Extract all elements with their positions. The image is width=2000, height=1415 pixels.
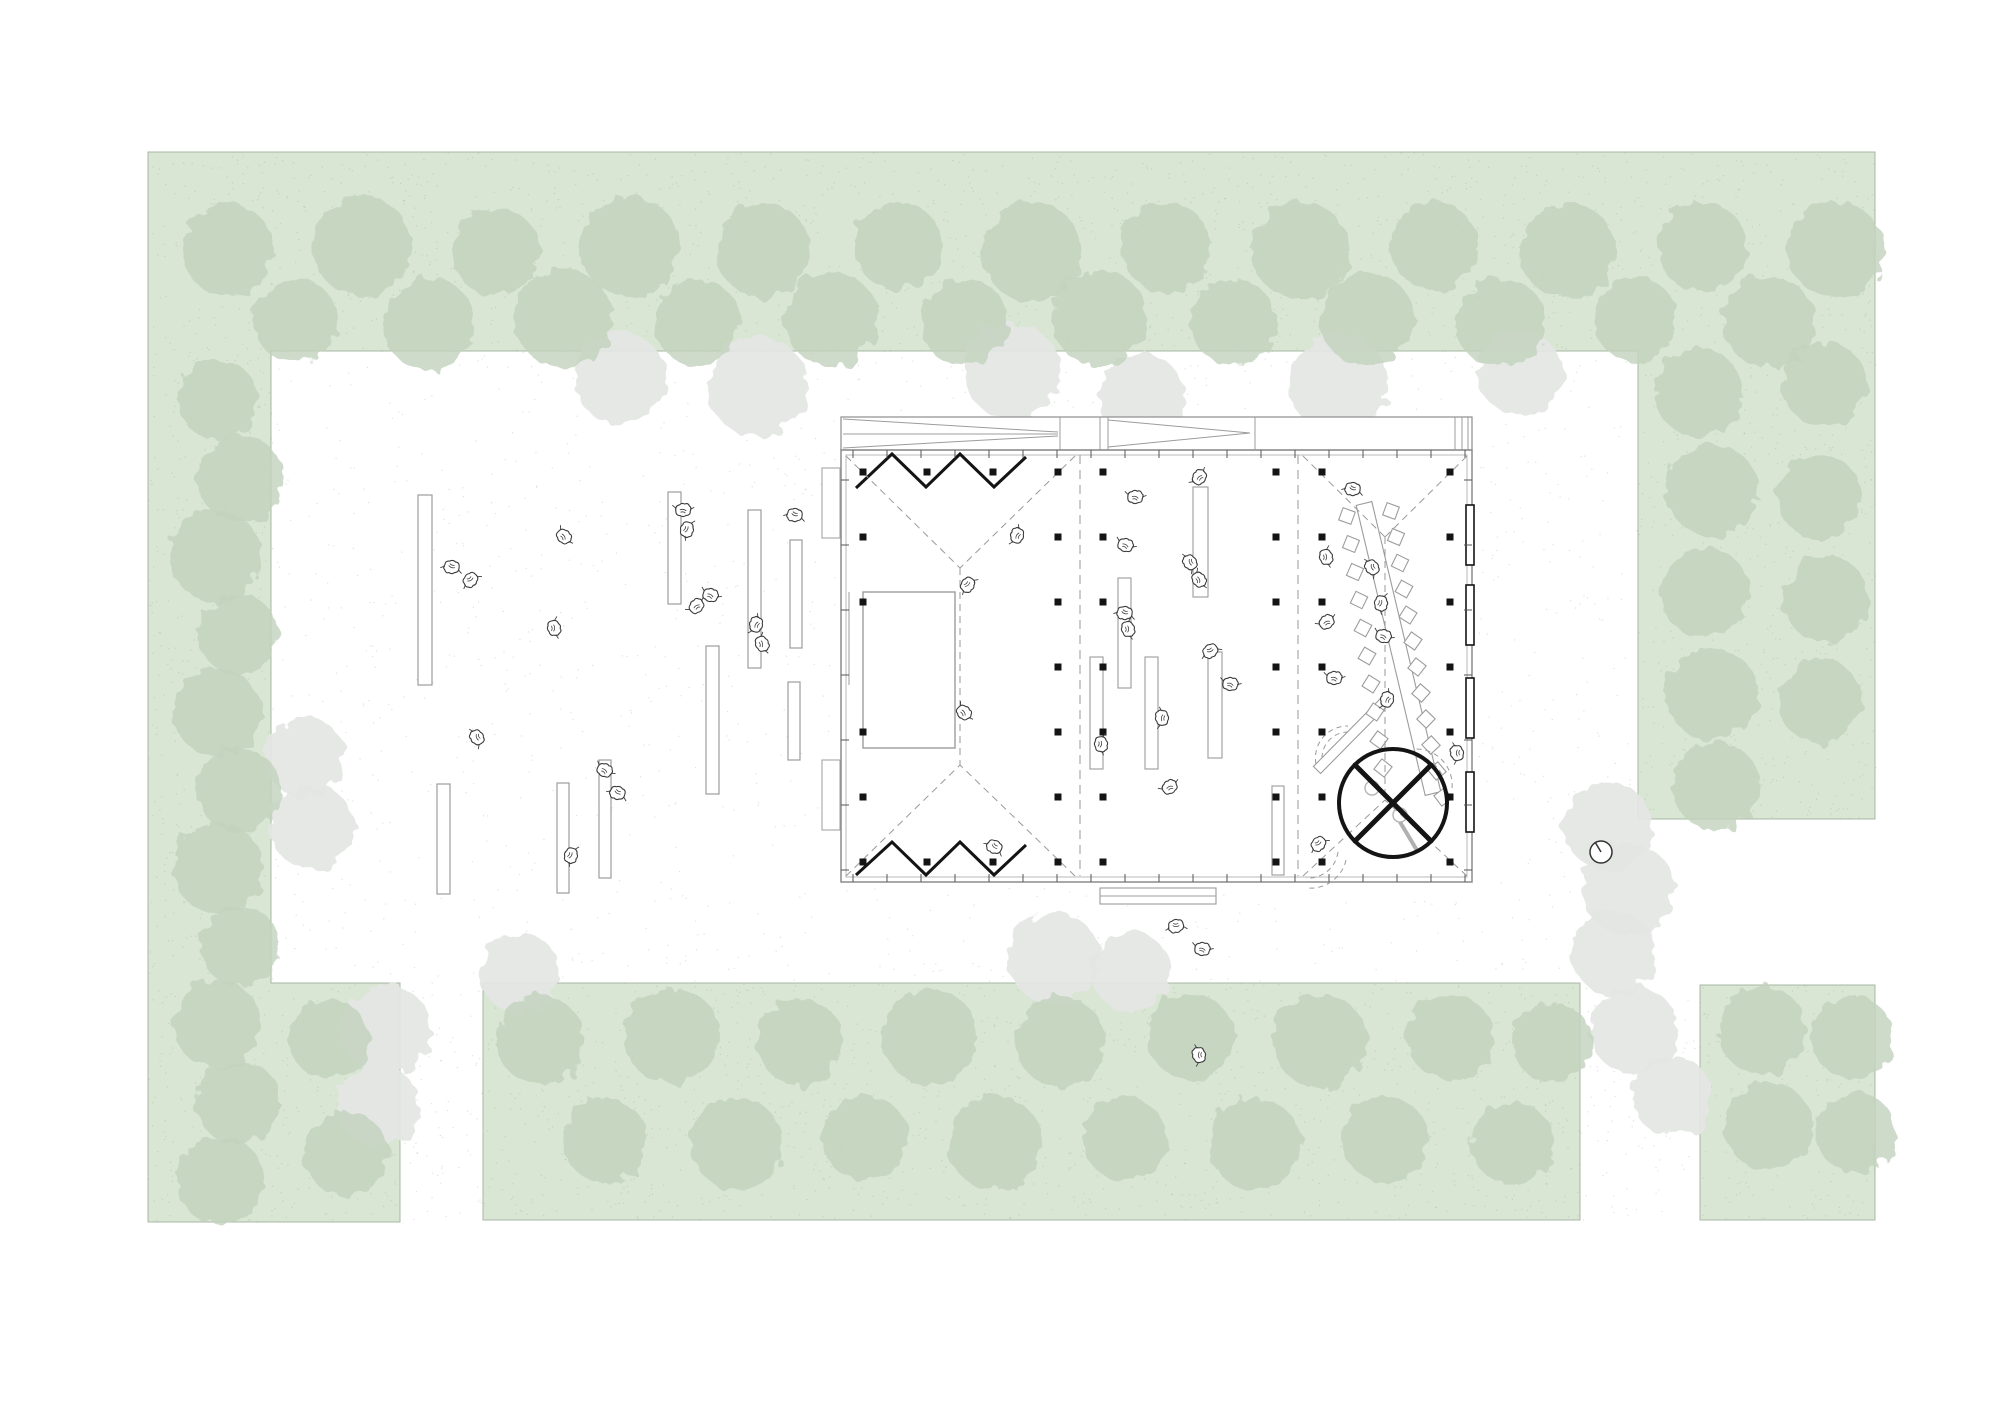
tree-canopy xyxy=(196,1060,280,1144)
column-marker xyxy=(1319,469,1326,476)
tree-canopy xyxy=(624,988,720,1084)
tree-canopy xyxy=(1778,659,1862,743)
tree-canopy xyxy=(1659,547,1749,637)
column-marker xyxy=(1100,664,1107,671)
column-marker xyxy=(1447,859,1454,866)
wall-panel xyxy=(822,760,840,830)
column-marker xyxy=(990,469,997,476)
tree-canopy xyxy=(1407,994,1493,1080)
column-marker xyxy=(1273,729,1280,736)
tree-canopy xyxy=(173,823,263,913)
wall-panel xyxy=(822,468,840,538)
plaza-benches xyxy=(418,492,802,894)
tree-canopy-faded xyxy=(1632,1056,1712,1136)
tree-canopy xyxy=(1147,993,1233,1079)
person-figure xyxy=(458,568,484,591)
column-marker xyxy=(1319,794,1326,801)
site-plan-canvas xyxy=(0,0,2000,1415)
column-marker xyxy=(1273,599,1280,606)
column-marker xyxy=(1447,534,1454,541)
column-marker xyxy=(1055,664,1062,671)
tree-canopy xyxy=(1273,994,1367,1088)
tree-canopy xyxy=(1456,278,1546,368)
bench xyxy=(706,646,719,794)
tree-canopy xyxy=(822,1095,908,1181)
tree-canopy xyxy=(383,278,475,370)
tree-canopy xyxy=(514,269,612,367)
tree-canopy xyxy=(1121,202,1211,292)
person-figure xyxy=(782,505,807,525)
architectural-site-plan xyxy=(0,0,2000,1415)
column-marker xyxy=(1055,859,1062,866)
tree-canopy xyxy=(198,594,278,674)
tree-canopy xyxy=(1015,996,1105,1086)
column-marker xyxy=(1273,534,1280,541)
tree-canopy xyxy=(176,1136,264,1224)
tree-canopy xyxy=(882,989,978,1085)
column-marker xyxy=(1447,664,1454,671)
tree-canopy xyxy=(197,748,281,832)
tree-canopy-faded xyxy=(1008,912,1100,1004)
column-marker xyxy=(924,859,931,866)
bench xyxy=(418,495,432,685)
tree-canopy xyxy=(691,1098,783,1190)
tree-canopy xyxy=(1190,279,1276,365)
column-marker xyxy=(1055,469,1062,476)
column-marker xyxy=(1273,664,1280,671)
column-marker xyxy=(1273,794,1280,801)
tree-canopy xyxy=(1782,342,1866,426)
tree-canopy-faded xyxy=(1572,911,1656,995)
column-marker xyxy=(1447,794,1454,801)
column-marker xyxy=(1319,664,1326,671)
column-marker xyxy=(860,794,867,801)
tree-canopy xyxy=(496,996,584,1084)
bench xyxy=(437,784,450,894)
column-marker xyxy=(1319,534,1326,541)
tree-canopy xyxy=(854,202,942,290)
tree-canopy xyxy=(1672,742,1760,830)
tree-canopy xyxy=(304,1112,388,1196)
bench xyxy=(599,760,611,878)
tree-canopy xyxy=(173,980,261,1068)
column-marker xyxy=(1100,794,1107,801)
tree-canopy xyxy=(1051,270,1147,366)
column-marker xyxy=(1055,599,1062,606)
column-marker xyxy=(1273,859,1280,866)
tree-canopy xyxy=(182,204,274,296)
person-figure xyxy=(439,557,464,577)
tree-canopy xyxy=(1209,1098,1301,1190)
person-figure xyxy=(467,725,487,750)
column-marker xyxy=(1055,534,1062,541)
pivot-door-panel xyxy=(1466,772,1474,832)
tree-canopy xyxy=(1593,277,1677,361)
tree-canopy xyxy=(200,906,280,986)
tree-canopy xyxy=(170,510,262,602)
tree-canopy xyxy=(921,279,1009,367)
tree-canopy xyxy=(1788,202,1884,298)
stage-platform xyxy=(863,592,955,748)
tree-canopy xyxy=(1342,1096,1428,1182)
column-marker xyxy=(1100,469,1107,476)
column-marker xyxy=(1100,599,1107,606)
tree-canopy xyxy=(1251,201,1349,299)
tree-canopy xyxy=(757,999,843,1085)
bench xyxy=(1208,652,1222,758)
column-marker xyxy=(1319,599,1326,606)
tree-canopy xyxy=(312,196,412,296)
column-marker xyxy=(1273,469,1280,476)
site-marker xyxy=(1590,841,1612,863)
bench xyxy=(790,540,802,648)
pivot-door-panel xyxy=(1466,505,1474,565)
column-marker xyxy=(860,534,867,541)
tree-canopy xyxy=(1083,1097,1167,1181)
tree-canopy xyxy=(1512,1002,1592,1082)
tree-canopy xyxy=(1390,202,1478,290)
tree-canopy xyxy=(1811,996,1893,1078)
tree-canopy xyxy=(1718,986,1806,1074)
tree-canopy-faded xyxy=(1091,932,1171,1012)
person-figure xyxy=(547,616,561,638)
column-marker xyxy=(924,469,931,476)
pivot-door-panel xyxy=(1466,678,1474,738)
tree-canopy xyxy=(1520,203,1616,299)
tree-canopy xyxy=(1666,444,1758,536)
tree-canopy xyxy=(1778,455,1862,539)
tree-canopy xyxy=(654,279,740,365)
tree-canopy xyxy=(563,1098,647,1182)
column-marker xyxy=(1100,859,1107,866)
column-marker xyxy=(1447,729,1454,736)
tree-canopy xyxy=(1724,1082,1812,1170)
bench xyxy=(557,783,569,893)
tree-canopy xyxy=(1471,1102,1553,1184)
column-marker xyxy=(1100,534,1107,541)
column-marker xyxy=(1100,729,1107,736)
person-figure xyxy=(552,523,575,549)
column-marker xyxy=(860,599,867,606)
column-marker xyxy=(860,859,867,866)
tree-canopy xyxy=(1666,648,1758,740)
tree-canopy-faded xyxy=(270,785,354,869)
tree-canopy xyxy=(717,204,811,298)
column-marker xyxy=(1055,794,1062,801)
tree-canopy xyxy=(1783,556,1869,642)
tree-canopy xyxy=(1816,1093,1896,1173)
tree-canopy xyxy=(290,1000,370,1080)
person-figure xyxy=(1189,939,1214,959)
column-marker xyxy=(1447,599,1454,606)
bench xyxy=(788,682,800,760)
column-marker xyxy=(1319,859,1326,866)
tree-canopy xyxy=(253,278,337,362)
tree-canopy xyxy=(784,272,878,366)
tree-canopy xyxy=(178,360,258,440)
column-marker xyxy=(1319,729,1326,736)
column-marker xyxy=(860,469,867,476)
tree-canopy xyxy=(1320,272,1414,366)
tree-canopy xyxy=(1657,202,1747,292)
pivot-door-panel xyxy=(1466,585,1474,645)
person-figure xyxy=(1166,919,1188,933)
pavilion-building xyxy=(822,417,1474,904)
column-marker xyxy=(1447,469,1454,476)
tree-canopy xyxy=(173,668,261,756)
column-marker xyxy=(1055,729,1062,736)
column-marker xyxy=(860,729,867,736)
tree-canopy xyxy=(948,1096,1042,1190)
tree-canopy xyxy=(197,435,283,521)
tree-canopy xyxy=(452,208,540,296)
tree-canopy xyxy=(1654,348,1742,436)
column-marker xyxy=(990,859,997,866)
